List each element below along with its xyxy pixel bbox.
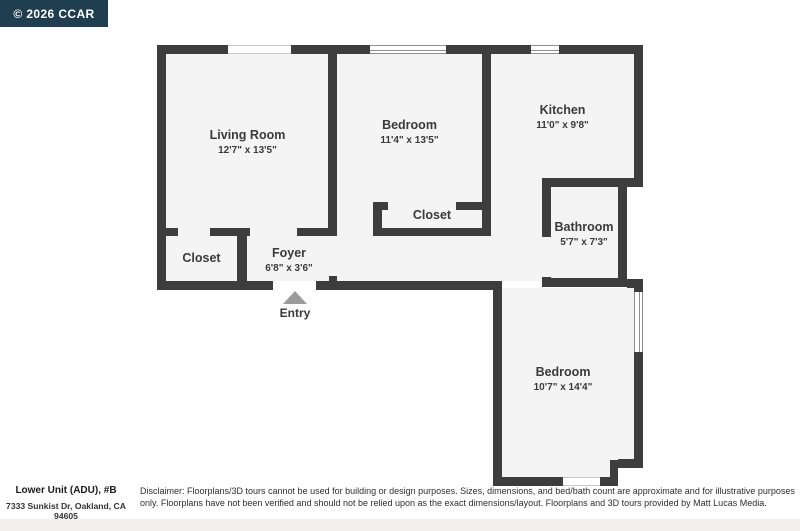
room-label-foyer: Foyer 6'8" x 3'6"	[249, 246, 329, 275]
room-name: Living Room	[167, 128, 328, 144]
wall	[237, 236, 247, 281]
window-bedroom-bottom-right	[634, 292, 643, 352]
wall	[157, 281, 273, 290]
room-name: Foyer	[249, 246, 329, 262]
room-name: Closet	[382, 208, 482, 224]
wall	[329, 276, 337, 282]
room-label-kitchen: Kitchen 11'0" x 9'8"	[491, 103, 634, 132]
wall	[542, 178, 643, 187]
exterior-notch-patch	[618, 468, 634, 477]
window-bedroom-top	[370, 45, 446, 54]
footer-strip	[0, 519, 800, 531]
room-name: Bathroom	[541, 220, 627, 236]
floorplan-page: © 2026 CCAR Living Room 12'7" x 13'5" Be…	[0, 0, 800, 531]
window-kitchen	[531, 45, 559, 54]
wall	[493, 282, 502, 486]
room-dims: 5'7" x 7'3"	[541, 237, 627, 250]
wall	[297, 228, 337, 236]
room-label-bathroom: Bathroom 5'7" x 7'3"	[541, 220, 627, 249]
room-dims: 6'8" x 3'6"	[249, 263, 329, 276]
room-label-closet-bedroom: Closet	[382, 208, 482, 224]
room-dims: 11'4" x 13'5"	[337, 135, 482, 148]
wall	[634, 45, 643, 187]
wall	[316, 281, 502, 290]
disclaimer-text: Disclaimer: Floorplans/3D tours cannot b…	[140, 486, 798, 509]
room-label-bedroom-bottom: Bedroom 10'7" x 14'4"	[502, 365, 624, 394]
entry-label: Entry	[255, 306, 335, 320]
wall	[210, 228, 250, 236]
wall	[373, 228, 491, 236]
unit-title: Lower Unit (ADU), #B	[0, 485, 132, 496]
room-dims: 12'7" x 13'5"	[167, 145, 328, 158]
address: 7333 Sunkist Dr, Oakland, CA 94605	[0, 501, 132, 521]
wall	[542, 278, 627, 287]
wall	[618, 459, 643, 468]
wall	[328, 54, 337, 236]
room-name: Bedroom	[337, 118, 482, 134]
window-living-room	[228, 45, 291, 54]
exterior-patch	[627, 187, 643, 281]
room-name: Bedroom	[502, 365, 624, 381]
room-label-closet-foyer: Closet	[166, 251, 237, 267]
room-label-bedroom-top: Bedroom 11'4" x 13'5"	[337, 118, 482, 147]
copyright-badge: © 2026 CCAR	[0, 0, 108, 27]
window-bedroom-bottom	[563, 477, 600, 486]
wall	[166, 228, 178, 236]
room-dims: 10'7" x 14'4"	[502, 382, 624, 395]
room-name: Kitchen	[491, 103, 634, 119]
entry-arrow-icon	[283, 291, 307, 304]
wall	[627, 279, 643, 288]
wall	[157, 45, 166, 290]
wall	[482, 54, 491, 236]
room-dims: 11'0" x 9'8"	[491, 120, 634, 133]
room-label-living-room: Living Room 12'7" x 13'5"	[167, 128, 328, 157]
wall	[610, 460, 618, 486]
wall	[493, 477, 563, 486]
room-name: Closet	[166, 251, 237, 267]
